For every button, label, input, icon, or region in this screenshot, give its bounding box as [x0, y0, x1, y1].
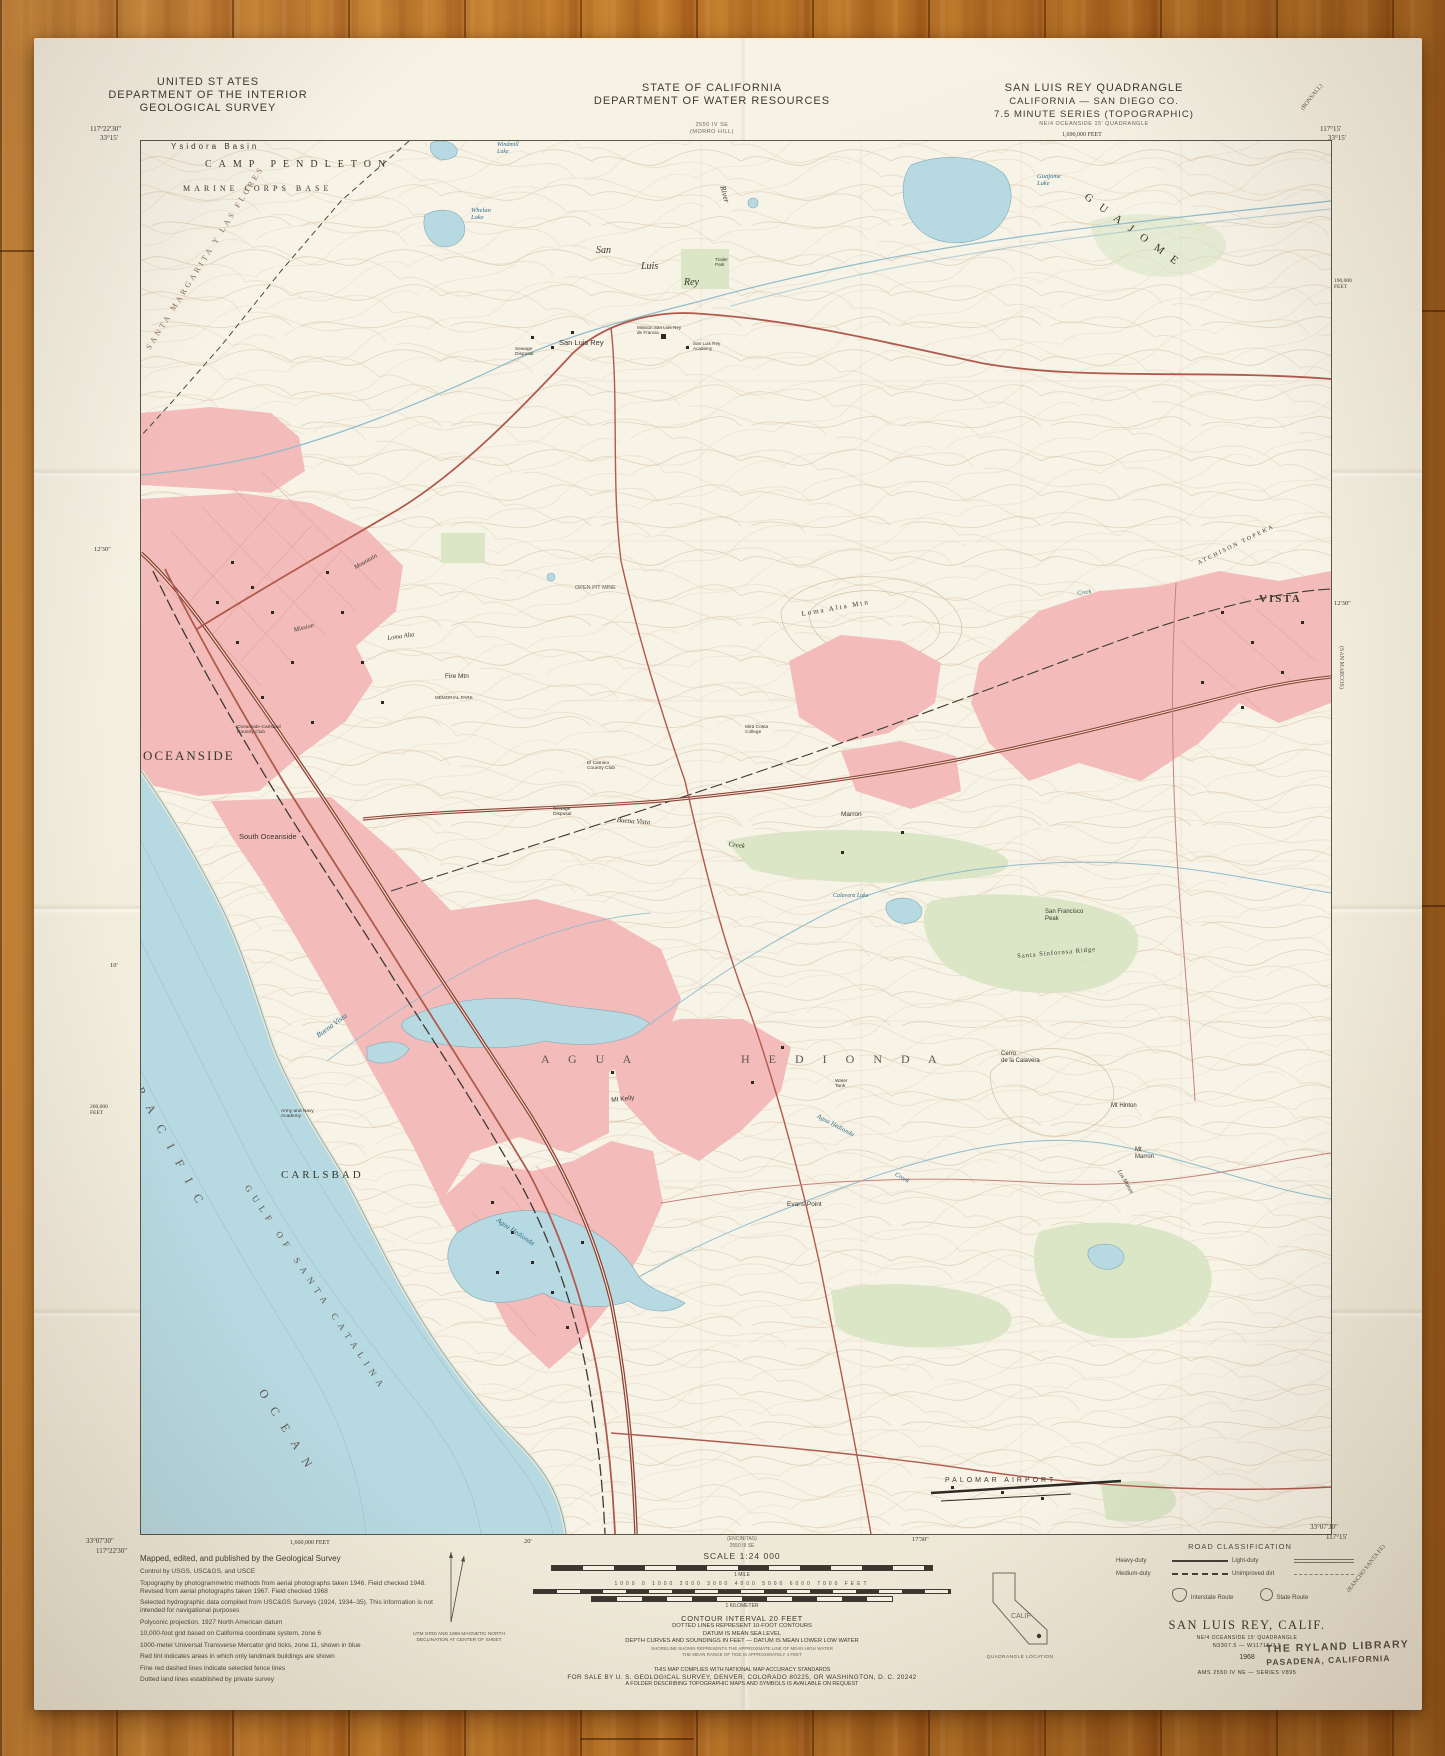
map-label: H E D I O N D A [741, 1053, 945, 1066]
heavy-duty-line-sample [1172, 1560, 1228, 1562]
map-label: Marron [841, 811, 862, 818]
legend-label: State Route [1277, 1595, 1309, 1601]
road-classification-legend: ROAD CLASSIFICATION Heavy-duty Light-dut… [1116, 1542, 1364, 1604]
map-label: San Luis Rey Academy [693, 341, 720, 351]
map-label: A G U A [541, 1053, 639, 1066]
map-label: Sewage Disposal [553, 807, 571, 818]
map-label: Windmill Lake [497, 142, 519, 155]
adjoining-quad-note: (SAN MARCOS) [1337, 646, 1344, 689]
sale-note-line: A FOLDER DESCRIBING TOPOGRAPHIC MAPS AND… [532, 1681, 952, 1688]
header-line: UNITED ST ATES [90, 76, 326, 89]
map-label: Sewage Disposal [515, 347, 533, 358]
sale-note-line: FOR SALE BY U. S. GEOLOGICAL SURVEY, DEN… [532, 1674, 952, 1681]
corner-coordinate: 117°22'30" [90, 126, 121, 134]
wood-plank-joint [580, 1738, 694, 1740]
map-label: Mira Costa College [745, 725, 768, 736]
map-label: PALOMAR AIRPORT [945, 1477, 1056, 1485]
scale-bar-label: 1 KILOMETER [532, 1603, 952, 1609]
grid-note: 1,660,000 FEET [290, 1540, 330, 1547]
header-line: CALIFORNIA — SAN DIEGO CO. [914, 95, 1274, 108]
scale-bar-label: 1 MILE [532, 1572, 952, 1578]
interstate-shield-icon [1172, 1588, 1187, 1602]
map-label: PACIFIC [141, 1085, 212, 1218]
declination-note-line: DECLINATION AT CENTER OF SHEET [374, 1638, 544, 1644]
map-label: Agua Hedionda [816, 1113, 856, 1139]
map-series-id: AMS 2550 IV NE — SERIES V895 [1122, 1670, 1372, 1676]
map-label: Fire Mtn [445, 673, 469, 680]
map-label: Buena Vista [616, 817, 650, 827]
map-title: SAN LUIS REY, CALIF. [1122, 1618, 1372, 1633]
map-label: OCEAN [256, 1387, 321, 1480]
map-label: Oceanside-Carlsbad Country Club [237, 725, 281, 736]
corner-coordinate: 33°07'30" [86, 1538, 114, 1546]
contour-note-line: DEPTH CURVES AND SOUNDINGS IN FEET — DAT… [532, 1638, 952, 1646]
map-label: Creek [1077, 589, 1092, 598]
contour-note-line: CONTOUR INTERVAL 20 FEET [532, 1615, 952, 1623]
scale-bar-feet-numbers: 1000 0 1000 2000 3000 4000 5000 6000 700… [532, 1581, 952, 1587]
map-label: Los Monos [1115, 1169, 1134, 1195]
credit-line: Fine red dashed lines indicate selected … [140, 1665, 448, 1673]
corner-coordinate: 33°15' [100, 135, 118, 143]
grid-note: 1,690,000 FEET [1062, 132, 1102, 139]
map-label: Loma Alta [387, 631, 415, 642]
edge-tick: 12'30" [94, 546, 111, 553]
edge-tick: 10' [110, 962, 118, 969]
map-area: Ysidora BasinCAMP PENDLETONMARINE CORPS … [140, 140, 1332, 1535]
map-label: GULF OF SANTA CATALINA [243, 1183, 389, 1393]
map-label: Ysidora Basin [171, 143, 259, 152]
map-label: El Camino Country Club [587, 761, 615, 772]
wood-plank-joint [0, 250, 34, 252]
credit-line: Dotted land lines established by private… [140, 1676, 448, 1684]
map-label: VISTA [1259, 593, 1302, 605]
map-sheet: UNITED ST ATES DEPARTMENT OF THE INTERIO… [34, 38, 1422, 1710]
state-abbrev: CALIF [1011, 1613, 1031, 1620]
scale-bar-kilometers [591, 1596, 893, 1602]
map-label: Whelan Lake [471, 207, 491, 222]
unimproved-dirt-line-sample [1294, 1574, 1354, 1575]
header-line: DEPARTMENT OF WATER RESOURCES [562, 95, 862, 108]
map-label: San Luis Rey [559, 339, 604, 347]
map-label: OCEANSIDE [143, 749, 235, 764]
declination-note: UTM GRID AND 1968 MAGNETIC NORTH DECLINA… [374, 1632, 544, 1644]
california-outline-icon: CALIF [989, 1570, 1051, 1648]
map-label: Agua Hedionda [495, 1217, 536, 1248]
quadrangle-location-caption: QUADRANGLE LOCATION [972, 1655, 1068, 1660]
map-label: MEMORIAL PARK [435, 695, 473, 700]
header-line: GEOLOGICAL SURVEY [90, 102, 326, 115]
declination-diagram [426, 1544, 476, 1624]
grid-note: 260,000 FEET [90, 1104, 108, 1116]
contour-note-line: DATUM IS MEAN SEA LEVEL [532, 1631, 952, 1639]
map-label: Luis [641, 261, 658, 272]
credit-line: Polyconic projection. 1927 North America… [140, 1619, 448, 1627]
adjoining-quad-note: (MORRO HILL) [562, 129, 862, 136]
grid-note: 190,000 FEET [1334, 278, 1352, 290]
sale-notes: THIS MAP COMPLIES WITH NATIONAL MAP ACCU… [532, 1667, 952, 1688]
map-label: Mt Marron [1135, 1147, 1154, 1160]
map-label: San Francisco Peak [1045, 909, 1083, 922]
header-line: SAN LUIS REY QUADRANGLE [914, 82, 1274, 95]
map-label: CAMP PENDLETON [205, 159, 392, 170]
legend-title: ROAD CLASSIFICATION [1116, 1542, 1364, 1551]
quadrangle-header: SAN LUIS REY QUADRANGLE CALIFORNIA — SAN… [914, 82, 1274, 128]
usgs-agency-header: UNITED ST ATES DEPARTMENT OF THE INTERIO… [90, 76, 326, 115]
map-label: OPEN PIT MINE [575, 585, 616, 591]
map-label: CARLSBAD [281, 1169, 364, 1181]
map-label: ATCHISON TOPEKA [1197, 524, 1276, 567]
map-label: Cerro de la Calavera [1001, 1051, 1040, 1064]
corner-coordinate: 117°15' [1326, 1534, 1347, 1542]
credit-line: Control by USGS, USC&GS, and USCE [140, 1568, 448, 1576]
map-label: Loma Alta Mtn [801, 599, 870, 619]
header-line: DEPARTMENT OF THE INTERIOR [90, 89, 326, 102]
scale-bar-feet [533, 1589, 951, 1595]
map-label: Guajome Lake [1037, 173, 1061, 188]
scale-heading: SCALE 1:24 000 [532, 1551, 952, 1561]
map-label: Mission [293, 622, 315, 634]
state-header: STATE OF CALIFORNIA DEPARTMENT OF WATER … [562, 82, 862, 136]
legend-label: Unimproved dirt [1232, 1571, 1290, 1577]
map-label: Mountain [353, 552, 379, 571]
medium-duty-line-sample [1172, 1573, 1228, 1575]
corner-coordinate: 117°15' [1320, 126, 1341, 134]
sale-note-line: THIS MAP COMPLIES WITH NATIONAL MAP ACCU… [532, 1667, 952, 1674]
quadrangle-location: CALIF QUADRANGLE LOCATION [972, 1570, 1068, 1660]
map-label: MARINE CORPS BASE [183, 185, 332, 194]
scale-block: (ENCINITAS) 2550 III SE SCALE 1:24 000 1… [532, 1536, 952, 1688]
map-label: Buena Vista [315, 1012, 349, 1040]
legend-label: Medium-duty [1116, 1571, 1168, 1577]
map-label: Army and Navy Academy [281, 1109, 314, 1120]
wood-plank-joint [1422, 310, 1445, 312]
map-label: Evans Point [787, 1201, 822, 1208]
map-label: Santa Sinforosa Ridge [1017, 946, 1096, 960]
adjoining-quad-note: 2550 IV SE [562, 122, 862, 129]
contour-interval-notes: CONTOUR INTERVAL 20 FEETDOTTED LINES REP… [532, 1615, 952, 1658]
map-label: Mission San Luis Rey de Francia [637, 325, 681, 335]
state-route-icon [1260, 1588, 1273, 1601]
contour-note-line: DOTTED LINES REPRESENT 10-FOOT CONTOURS [532, 1623, 952, 1631]
adjoining-quad-note: (BONSALL) [1300, 83, 1325, 112]
map-label: Rey [684, 277, 699, 288]
credit-line: Selected hydrographic data compiled from… [140, 1599, 448, 1615]
map-label: San [596, 245, 611, 256]
map-labels-layer: Ysidora BasinCAMP PENDLETONMARINE CORPS … [141, 141, 1331, 1534]
header-line: 7.5 MINUTE SERIES (TOPOGRAPHIC) [914, 108, 1274, 121]
light-duty-line-sample [1294, 1559, 1354, 1563]
map-label: Calavera Lake [833, 893, 869, 900]
map-label: River [717, 185, 730, 204]
legend-label: Interstate Route [1191, 1595, 1234, 1601]
legend-label: Heavy-duty [1116, 1558, 1168, 1564]
edge-tick: 20' [524, 1538, 532, 1545]
map-label: Trailer Park [715, 257, 728, 267]
scale-bar-miles [551, 1565, 933, 1571]
legend-label: Light-duty [1232, 1558, 1290, 1564]
map-label: Creek [893, 1171, 910, 1185]
credits-block: Mapped, edited, and published by the Geo… [140, 1554, 448, 1688]
credit-line: Mapped, edited, and published by the Geo… [140, 1554, 448, 1563]
map-label: Water Tank [835, 1079, 848, 1090]
map-label: Creek [728, 841, 745, 851]
wood-plank-joint [1422, 905, 1445, 907]
edge-tick: 12'30" [1334, 600, 1351, 607]
adjoining-quad-note: 2550 III SE [532, 1543, 952, 1550]
corner-coordinate: 117°22'30" [96, 1548, 127, 1556]
map-label: Mt Kelly [611, 1095, 635, 1105]
contour-note-line: THE MEAN RANGE OF TIDE IS APPROXIMATELY … [532, 1652, 952, 1658]
map-label: Mt Hinton [1111, 1103, 1137, 1110]
map-label: South Oceanside [239, 833, 297, 841]
credit-line: Topography by photogrammetric methods fr… [140, 1580, 448, 1596]
credit-line: Red tint indicates areas in which only l… [140, 1653, 448, 1661]
map-label: GUAJOME [1082, 191, 1188, 273]
header-subline: NE/4 OCEANSIDE 15' QUADRANGLE [914, 121, 1274, 128]
header-line: STATE OF CALIFORNIA [562, 82, 862, 95]
